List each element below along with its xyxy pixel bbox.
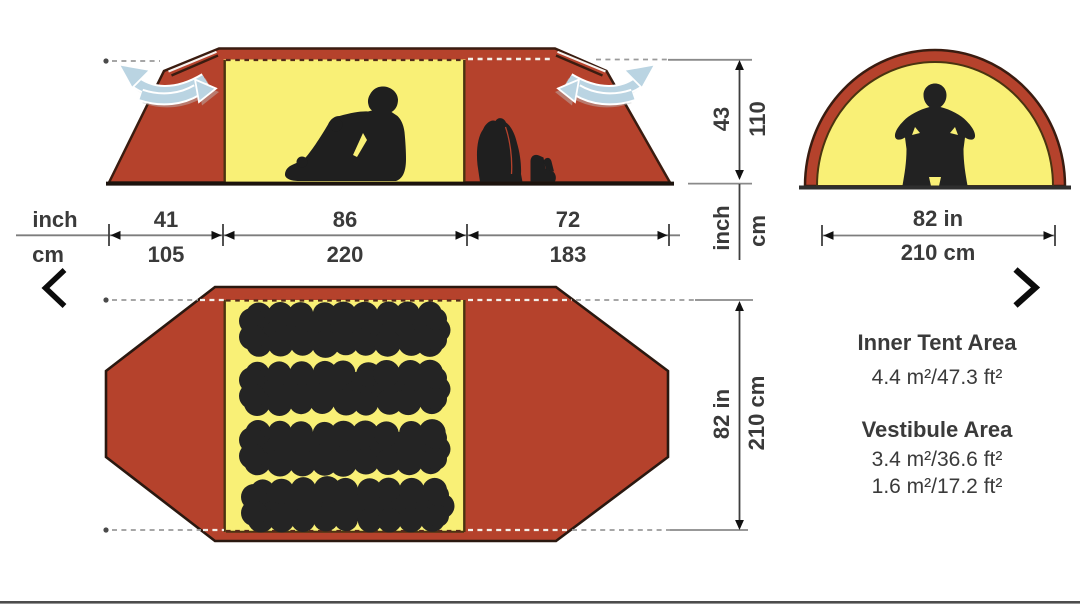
- svg-text:72: 72: [556, 207, 580, 232]
- svg-text:Inner Tent Area: Inner Tent Area: [858, 330, 1018, 355]
- svg-text:210 cm: 210 cm: [901, 240, 976, 265]
- svg-text:inch: inch: [709, 205, 734, 250]
- svg-text:4.4 m²/47.3 ft²: 4.4 m²/47.3 ft²: [872, 366, 1003, 389]
- svg-text:82 in: 82 in: [913, 206, 963, 231]
- svg-text:210 cm: 210 cm: [744, 376, 769, 451]
- svg-text:1.6 m²/17.2 ft²: 1.6 m²/17.2 ft²: [872, 475, 1003, 498]
- svg-text:105: 105: [148, 242, 185, 267]
- svg-text:inch: inch: [32, 207, 77, 232]
- svg-text:86: 86: [333, 207, 357, 232]
- svg-text:41: 41: [154, 207, 178, 232]
- svg-text:cm: cm: [745, 215, 770, 247]
- svg-text:3.4 m²/36.6 ft²: 3.4 m²/36.6 ft²: [872, 448, 1003, 471]
- svg-text:cm: cm: [32, 242, 64, 267]
- svg-text:Vestibule Area: Vestibule Area: [862, 417, 1014, 442]
- svg-text:183: 183: [550, 242, 587, 267]
- svg-text:82 in: 82 in: [709, 389, 734, 439]
- svg-text:110: 110: [745, 101, 770, 137]
- svg-text:220: 220: [327, 242, 364, 267]
- svg-text:43: 43: [709, 107, 734, 131]
